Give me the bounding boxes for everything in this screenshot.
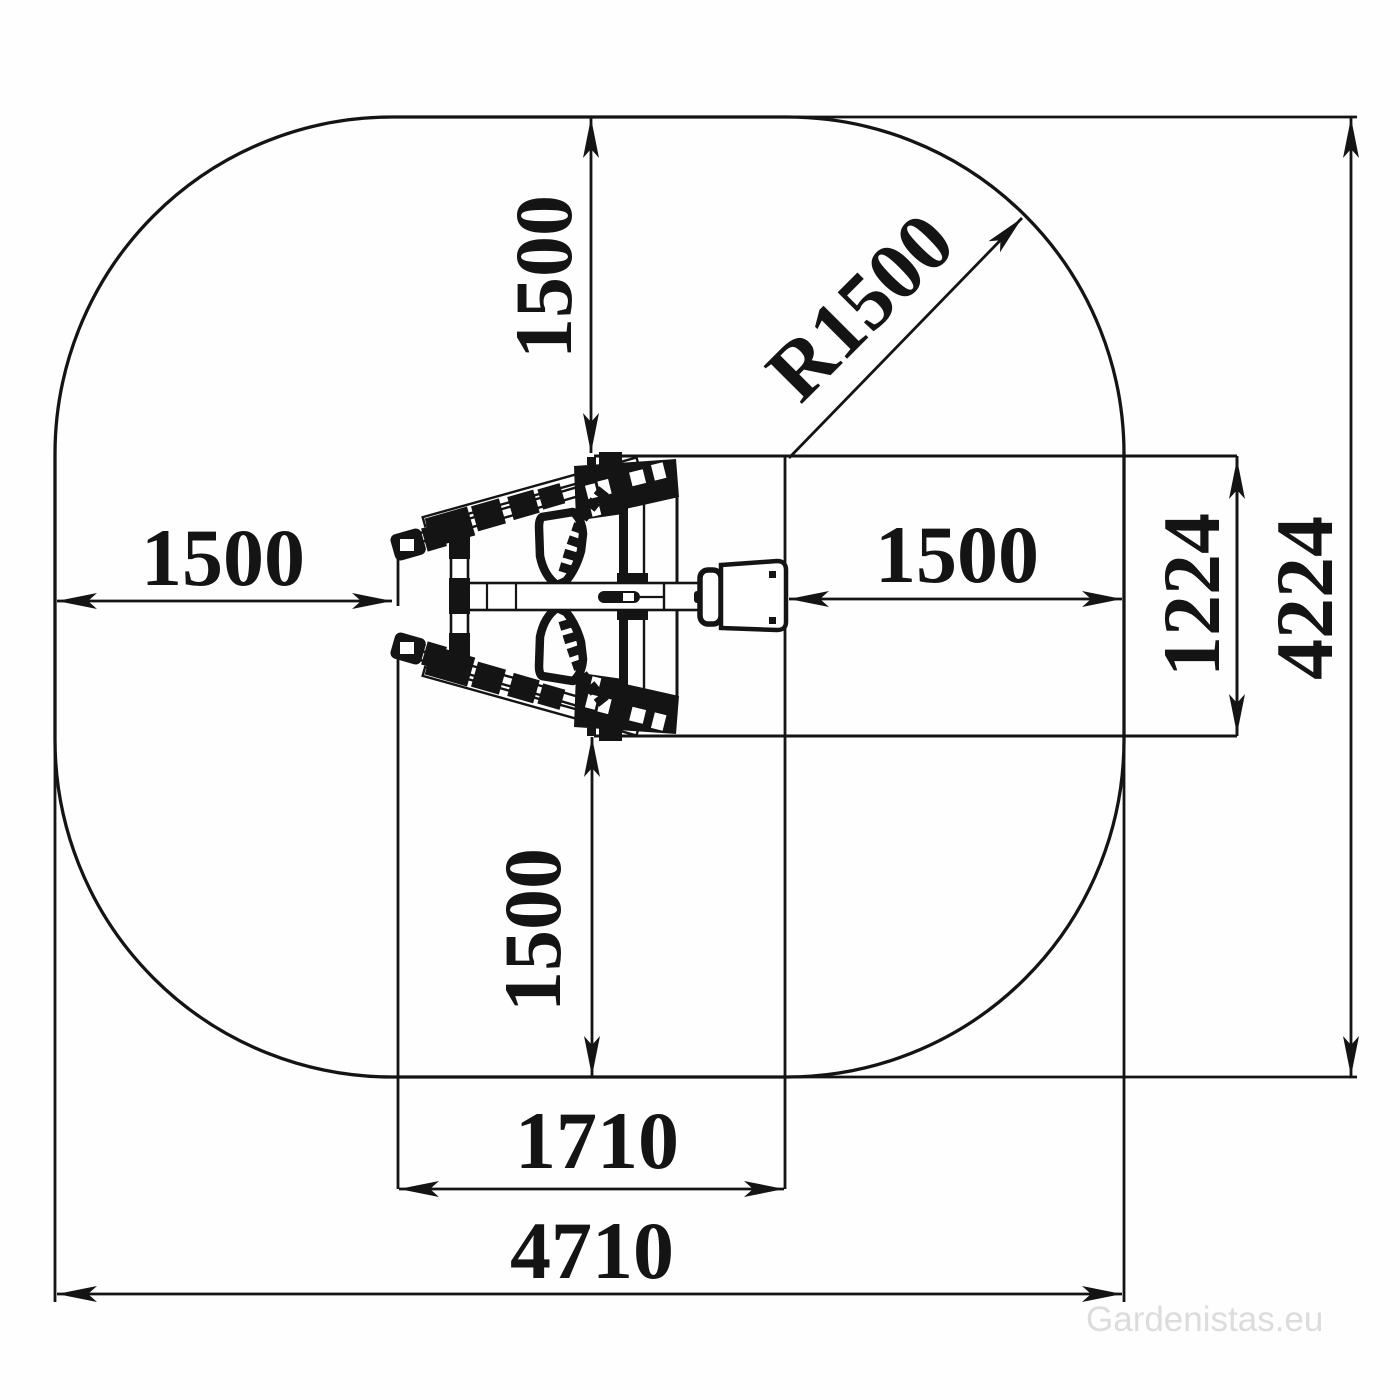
svg-text:Gardenistas.eu: Gardenistas.eu: [1086, 1300, 1323, 1339]
svg-text:1500: 1500: [498, 195, 589, 359]
svg-text:1500: 1500: [487, 848, 578, 1012]
svg-text:1710: 1710: [515, 1095, 679, 1186]
svg-text:1500: 1500: [875, 509, 1039, 600]
svg-text:4224: 4224: [1259, 516, 1350, 680]
svg-text:4710: 4710: [510, 1205, 674, 1296]
svg-text:1224: 1224: [1146, 513, 1237, 677]
svg-text:1500: 1500: [141, 512, 305, 603]
